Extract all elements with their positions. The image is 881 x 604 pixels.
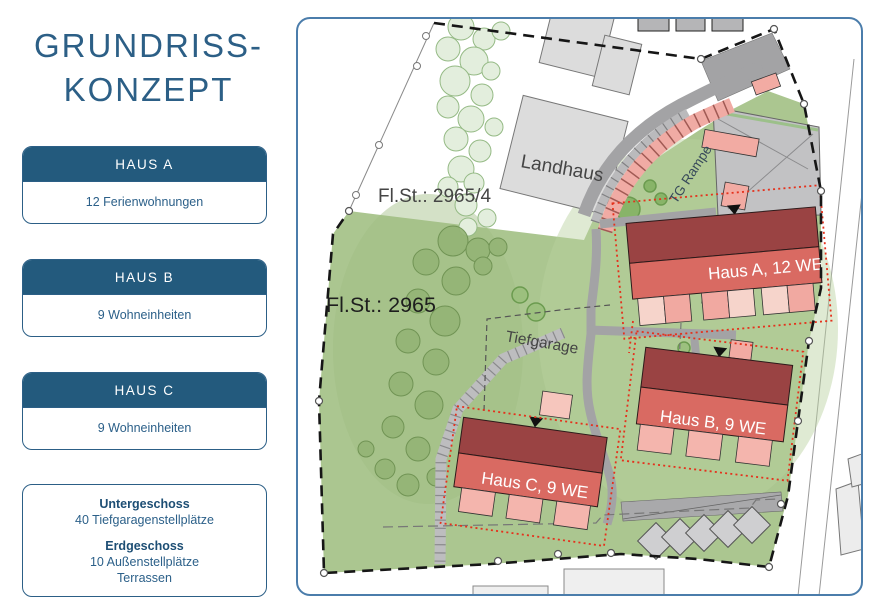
parcel-2965-label: Fl.St.: 2965 [326,293,436,317]
card-haus-a-header: HAUS A [23,147,266,182]
page-title: GRUNDRISS- KONZEPT [0,24,297,111]
info-erdgeschoss-line2: Terrassen [23,571,266,585]
info-untergeschoss-title: Untergeschoss [23,497,266,511]
page-title-line2: KONZEPT [0,68,297,112]
card-haus-c-header: HAUS C [23,373,266,408]
ne-paved-area [701,33,821,216]
card-haus-a-body: 12 Ferienwohnungen [23,182,266,223]
card-haus-c-body: 9 Wohneinheiten [23,408,266,449]
card-haus-a: HAUS A 12 Ferienwohnungen [22,146,267,224]
card-haus-b-body: 9 Wohneinheiten [23,295,266,336]
card-haus-c: HAUS C 9 Wohneinheiten [22,372,267,450]
top-parking [638,19,743,31]
parcel-2965-4-label: Fl.St.: 2965/4 [378,186,491,207]
info-untergeschoss-line: 40 Tiefgaragenstellplätze [23,513,266,527]
site-plan: Haus A, 12 WE Haus B, 9 WE Haus C, 9 WE [296,17,863,596]
sidebar: GRUNDRISS- KONZEPT HAUS A 12 Ferienwohnu… [0,0,297,604]
card-haus-b: HAUS B 9 Wohneinheiten [22,259,267,337]
site-plan-svg: Haus A, 12 WE Haus B, 9 WE Haus C, 9 WE [298,19,863,596]
card-haus-b-header: HAUS B [23,260,266,295]
info-erdgeschoss-line1: 10 Außenstellplätze [23,555,266,569]
page-title-line1: GRUNDRISS- [0,24,297,68]
info-erdgeschoss-title: Erdgeschoss [23,539,266,553]
survey-line-nw [349,23,434,211]
parking-info-card: Untergeschoss 40 Tiefgaragenstellplätze … [22,484,267,597]
